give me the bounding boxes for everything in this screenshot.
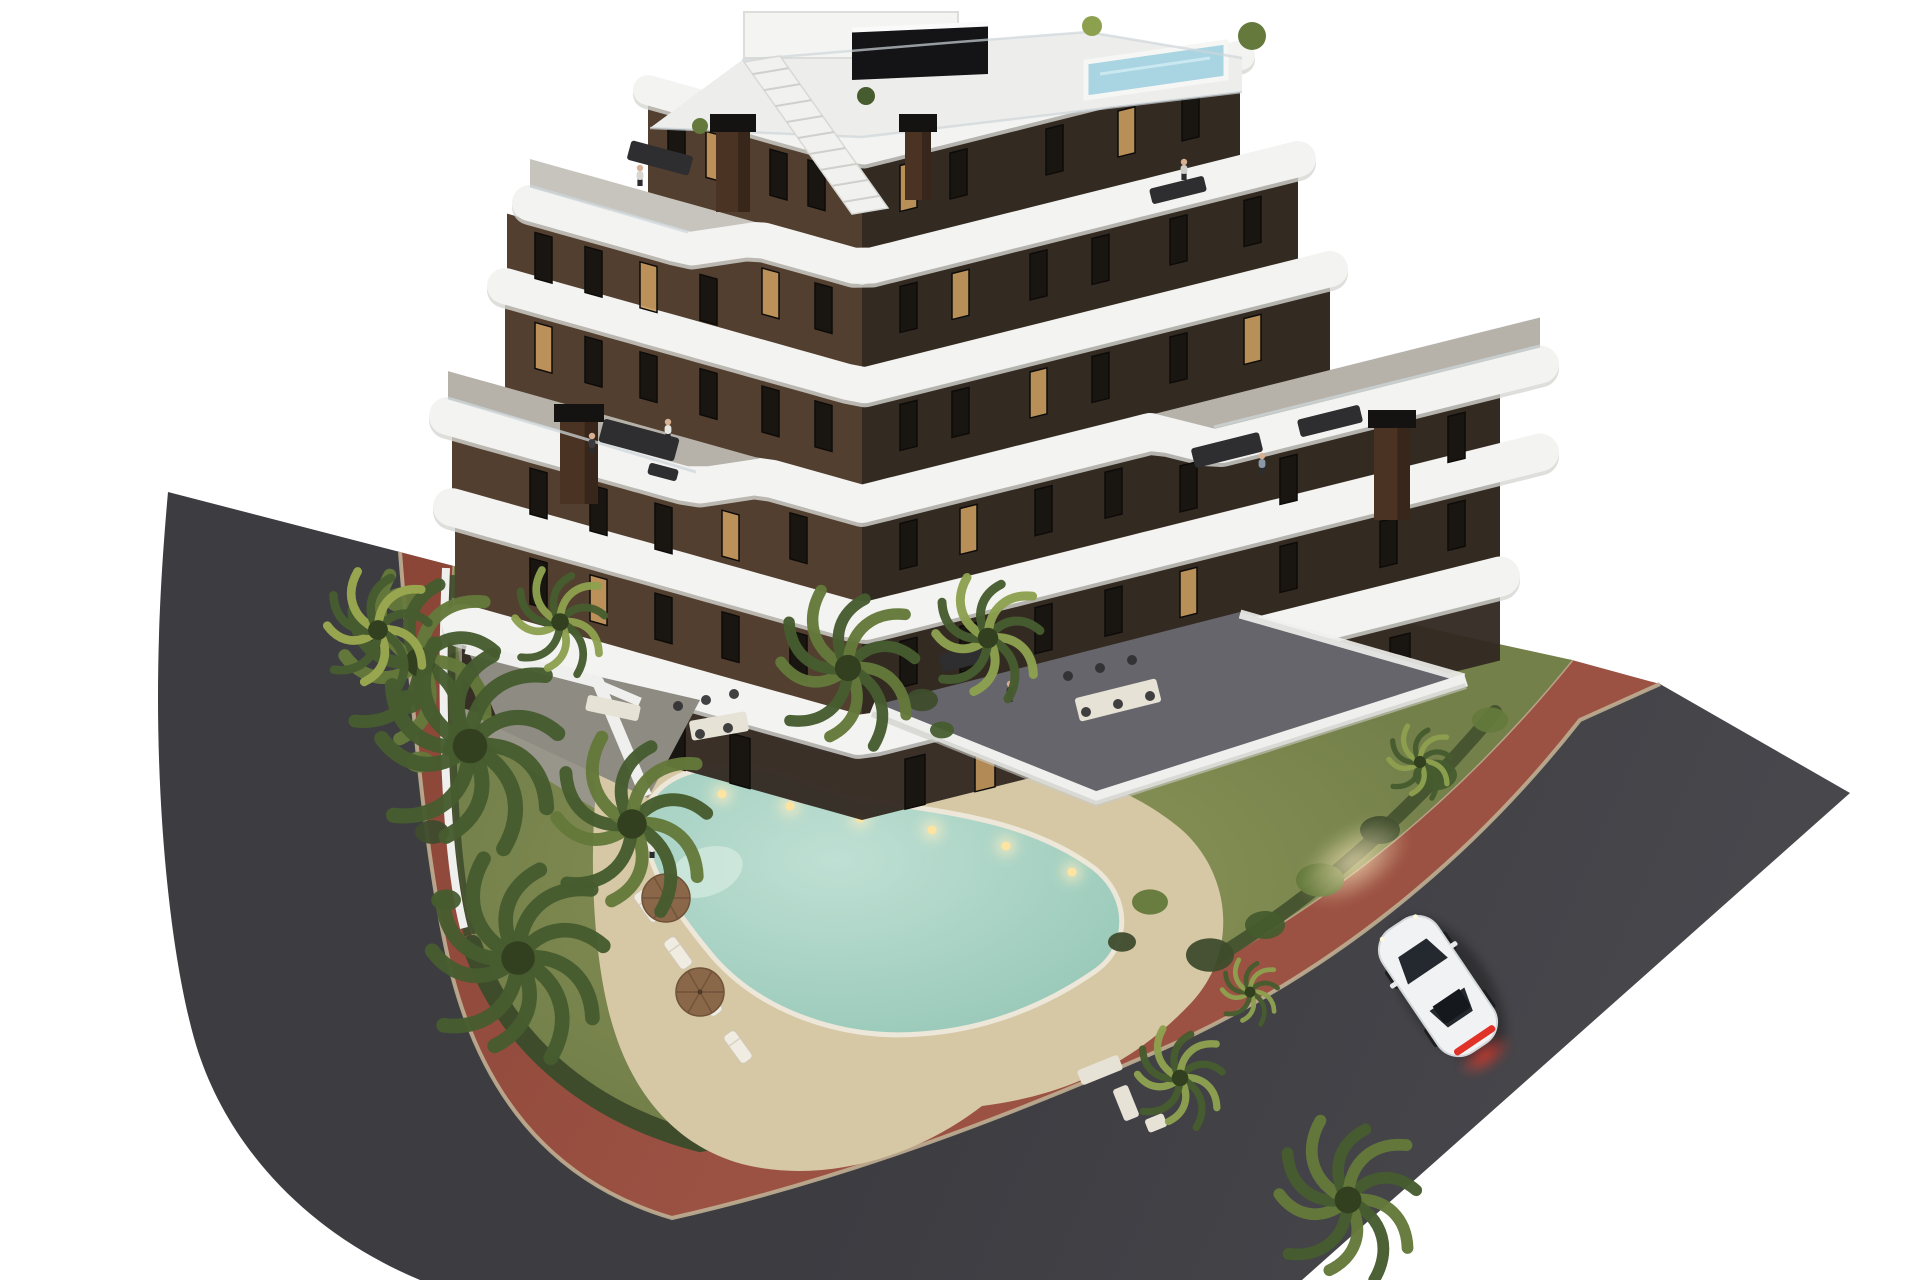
person bbox=[1181, 159, 1188, 180]
chimney-cap bbox=[1368, 410, 1416, 428]
window-left-f1 bbox=[815, 283, 832, 334]
chair bbox=[1145, 691, 1155, 701]
window-right-f3 bbox=[1180, 462, 1197, 512]
window-left-f2 bbox=[815, 401, 832, 452]
architectural-render: Aerial dusk 3D architectural rendering o… bbox=[0, 0, 1920, 1280]
chimney-cap bbox=[554, 404, 604, 422]
window-right-f2 bbox=[1030, 368, 1047, 418]
window-left-f2 bbox=[585, 336, 602, 387]
person-torso bbox=[589, 439, 596, 448]
window-right-f3 bbox=[1280, 454, 1297, 504]
chair bbox=[673, 701, 683, 711]
person-torso bbox=[665, 425, 672, 434]
window-left-f2 bbox=[640, 352, 657, 403]
window-right-f2 bbox=[1092, 352, 1109, 402]
window-left-f3 bbox=[655, 503, 672, 554]
window-left-f1 bbox=[535, 232, 552, 283]
window-left-f1 bbox=[762, 268, 779, 319]
roof-plant bbox=[1238, 22, 1266, 50]
chimney-shade bbox=[1397, 424, 1410, 520]
pool-light bbox=[786, 802, 795, 811]
chair bbox=[1081, 707, 1091, 717]
person-head bbox=[1259, 453, 1265, 459]
person-torso bbox=[1259, 459, 1266, 468]
chair bbox=[1113, 699, 1123, 709]
bush bbox=[1245, 911, 1285, 939]
chimney-shade bbox=[585, 418, 598, 504]
window-right-f1 bbox=[900, 282, 917, 332]
chimney-cap bbox=[710, 114, 756, 132]
chimney-cap bbox=[899, 114, 937, 132]
window-left-f1 bbox=[640, 262, 657, 313]
chair bbox=[1063, 671, 1073, 681]
window-left-f3 bbox=[790, 513, 807, 564]
window-right-f1 bbox=[1244, 196, 1261, 246]
roof-plant bbox=[857, 87, 875, 105]
person-legs bbox=[1181, 174, 1186, 181]
bush bbox=[1132, 889, 1168, 914]
palm-crown-center bbox=[1335, 1187, 1362, 1214]
window-right-f4 bbox=[1380, 517, 1397, 567]
window-right-f1 bbox=[1170, 215, 1187, 265]
window-left-f0 bbox=[770, 149, 787, 200]
bush bbox=[1186, 938, 1234, 972]
person bbox=[665, 419, 672, 440]
bush bbox=[1472, 707, 1508, 732]
palm-crown-center bbox=[453, 729, 488, 764]
person bbox=[1259, 453, 1266, 474]
window-right-f3 bbox=[960, 504, 977, 554]
window-right-f3 bbox=[1448, 412, 1465, 462]
window-left-f1 bbox=[585, 246, 602, 297]
window-right-f1 bbox=[1092, 234, 1109, 284]
window-right-f0 bbox=[1118, 107, 1135, 157]
person-head bbox=[1181, 159, 1187, 165]
person-head bbox=[665, 419, 671, 425]
window-right-f4 bbox=[1280, 542, 1297, 592]
palm-crown-center bbox=[501, 941, 535, 975]
window-right-f2 bbox=[952, 387, 969, 437]
pool-light bbox=[928, 826, 937, 835]
palm-crown-center bbox=[1414, 756, 1426, 768]
roof-grill bbox=[852, 24, 988, 80]
window-left-f2 bbox=[535, 322, 552, 373]
pool-light bbox=[718, 790, 727, 799]
chair bbox=[695, 729, 705, 739]
umbrella-pole bbox=[698, 990, 703, 995]
window-left-f4 bbox=[655, 593, 672, 644]
window-left-f3 bbox=[722, 510, 739, 561]
chair bbox=[1095, 663, 1105, 673]
person-torso bbox=[637, 171, 644, 180]
chair bbox=[1127, 655, 1137, 665]
window-right-f3 bbox=[900, 519, 917, 569]
window-right-f1 bbox=[1030, 250, 1047, 300]
window-right-f4 bbox=[1448, 500, 1465, 550]
window-left-f2 bbox=[762, 386, 779, 437]
person-torso bbox=[1181, 165, 1188, 174]
person-head bbox=[637, 165, 643, 171]
roof-plant bbox=[1082, 16, 1102, 36]
window-right-f1 bbox=[952, 269, 969, 319]
glass-door bbox=[730, 733, 750, 789]
window-left-f4 bbox=[722, 612, 739, 663]
window-right-f3 bbox=[1035, 486, 1052, 536]
person-legs bbox=[637, 180, 642, 187]
person-legs bbox=[1259, 468, 1264, 475]
palm-crown-center bbox=[1245, 987, 1256, 998]
chimney-shade bbox=[922, 128, 931, 200]
window-right-f0 bbox=[1046, 125, 1063, 175]
chair bbox=[701, 695, 711, 705]
chimney-shade bbox=[738, 128, 750, 212]
window-right-f3 bbox=[1105, 468, 1122, 518]
person-legs bbox=[649, 852, 654, 859]
palm-crown-center bbox=[551, 613, 569, 631]
roof-plant bbox=[692, 118, 708, 134]
render-stage: Aerial dusk 3D architectural rendering o… bbox=[0, 0, 1920, 1280]
window-right-f2 bbox=[1170, 333, 1187, 383]
person-legs bbox=[589, 448, 594, 455]
window-right-f0 bbox=[950, 149, 967, 199]
window-right-f2 bbox=[900, 400, 917, 450]
palm-crown-center bbox=[1172, 1070, 1189, 1087]
pool-light bbox=[1002, 842, 1011, 851]
window-left-f2 bbox=[700, 369, 717, 420]
window-left-f1 bbox=[700, 274, 717, 325]
person-legs bbox=[665, 434, 670, 441]
chair bbox=[729, 689, 739, 699]
palm-crown-center bbox=[617, 809, 646, 838]
person bbox=[637, 165, 644, 186]
person-head bbox=[589, 433, 595, 439]
palm-crown-center bbox=[978, 628, 998, 648]
chair bbox=[723, 723, 733, 733]
glass-door bbox=[905, 754, 925, 809]
palm-crown-center bbox=[368, 620, 388, 640]
palm-crown-center bbox=[835, 655, 861, 681]
window-right-f4 bbox=[1180, 567, 1197, 617]
bush bbox=[930, 722, 954, 739]
window-right-f2 bbox=[1244, 314, 1261, 364]
bush bbox=[1108, 932, 1136, 952]
person bbox=[589, 433, 596, 454]
window-left-f3 bbox=[530, 468, 547, 519]
window-right-f4 bbox=[1105, 586, 1122, 636]
pool-light bbox=[1068, 868, 1077, 877]
